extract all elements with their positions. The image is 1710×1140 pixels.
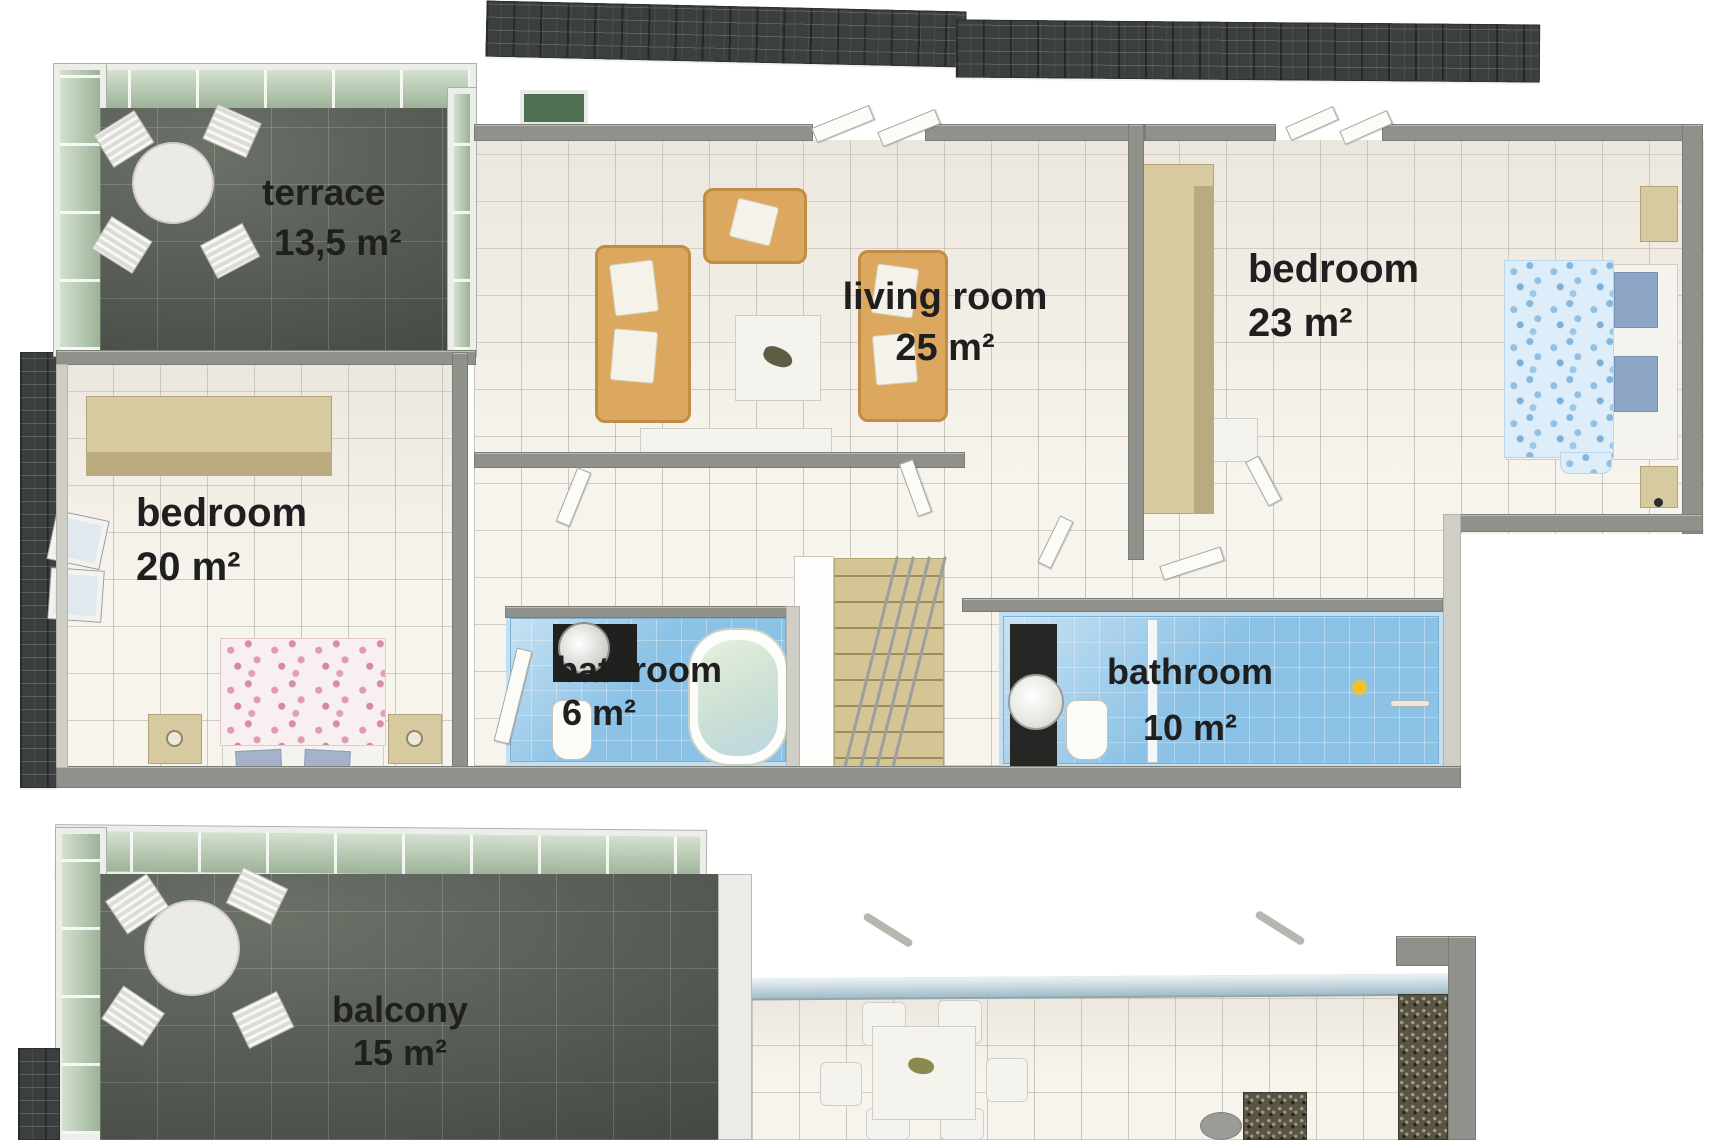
door-leaf	[1285, 106, 1339, 141]
room-name: terrace	[262, 168, 402, 218]
wall-light-accent	[1352, 680, 1367, 695]
room-area: 23 m²	[1248, 296, 1419, 350]
roof-strip-right	[956, 19, 1540, 82]
room-area: 6 m²	[556, 691, 722, 734]
wall-bathroom-large-top	[962, 598, 1443, 612]
room-name: bathroom	[556, 648, 722, 691]
room-area: 20 m²	[136, 540, 307, 594]
room-name: bedroom	[1248, 242, 1419, 296]
room-label-bedroom-left: bedroom 20 m²	[136, 486, 307, 594]
wall-living-top	[474, 124, 813, 141]
wall-bathroom-small-top	[505, 606, 800, 618]
room-area: 25 m²	[790, 323, 1100, 374]
exterior-area	[1461, 534, 1710, 790]
wall-right-exterior	[1682, 124, 1703, 534]
room-label-bathroom-large: bathroom 10 m²	[1040, 644, 1340, 756]
sofa-cushion	[610, 328, 658, 384]
wall-bathroom-small-right	[786, 606, 800, 788]
window-open-tick	[1254, 910, 1306, 946]
nightstand-lamp	[166, 730, 183, 747]
terrace-table	[132, 142, 214, 224]
wall-balcony-right	[718, 874, 752, 1140]
wall-terrace-south	[56, 350, 476, 365]
room-area: 15 m²	[300, 1031, 500, 1074]
wall-bathroom-large-right	[1443, 514, 1461, 788]
wall-divider-living-bedroom	[1128, 124, 1144, 560]
wall-bedroom-right-bottom	[1443, 514, 1703, 532]
kitchen-stool	[1200, 1112, 1242, 1140]
bed-blanket	[1504, 260, 1614, 458]
bed-blanket-fold	[1560, 452, 1612, 474]
room-label-bathroom-small: bathroom 6 m²	[556, 648, 722, 734]
bed-pillow	[1614, 356, 1658, 412]
wall-bedroom-left-right	[452, 352, 468, 788]
wall-left-exterior	[56, 364, 68, 768]
room-name: bathroom	[1040, 644, 1340, 700]
bedroom-right-wardrobe-side	[1194, 186, 1214, 514]
sofa-cushion	[609, 260, 659, 317]
dining-chair	[820, 1062, 862, 1106]
nightstand-knob	[1654, 498, 1663, 507]
bed-pillow	[1614, 272, 1658, 328]
dining-chair	[986, 1058, 1028, 1102]
roof-corner-lower-left	[18, 1048, 60, 1140]
balcony-glass-wall-left	[56, 828, 106, 1140]
towel-rail	[1390, 700, 1430, 707]
terrace-glass-wall-left	[54, 64, 106, 356]
wall-living-top	[925, 124, 1145, 141]
room-area: 10 m²	[1040, 700, 1340, 756]
roof-strip-left	[485, 1, 966, 68]
wall-bedroom-right-top	[1145, 124, 1276, 141]
room-name: bedroom	[136, 486, 307, 540]
kitchen-island	[1243, 1092, 1307, 1140]
room-area: 13,5 m²	[262, 218, 402, 268]
room-label-bedroom-right: bedroom 23 m²	[1248, 242, 1419, 350]
room-label-terrace: terrace 13,5 m²	[262, 168, 402, 268]
door-leaf	[811, 105, 874, 143]
bed-blanket	[220, 638, 386, 746]
wall-bottom-exterior	[56, 766, 1461, 788]
bedroom-left-wardrobe-side	[86, 452, 332, 476]
terrace-glass-wall-top	[54, 64, 476, 114]
wall-dining-right	[1448, 936, 1476, 1140]
floor-plan: terrace 13,5 m² living room 25 m² bedroo…	[0, 0, 1710, 1140]
stair-wall	[794, 556, 834, 786]
living-corner-glass-panel	[520, 90, 588, 126]
terrace-glass-wall-right	[448, 88, 476, 356]
wall-bedroom-right-top	[1382, 124, 1703, 141]
room-name: balcony	[300, 988, 500, 1031]
room-label-living-room: living room 25 m²	[790, 272, 1100, 375]
balcony-table	[144, 900, 240, 996]
room-name: living room	[790, 272, 1100, 323]
nightstand-lamp	[406, 730, 423, 747]
window-open-tick	[862, 912, 914, 948]
room-label-balcony: balcony 15 m²	[300, 988, 500, 1074]
dresser	[1640, 186, 1678, 242]
wall-living-bottom	[474, 452, 965, 468]
kitchen-counter	[1398, 994, 1448, 1140]
